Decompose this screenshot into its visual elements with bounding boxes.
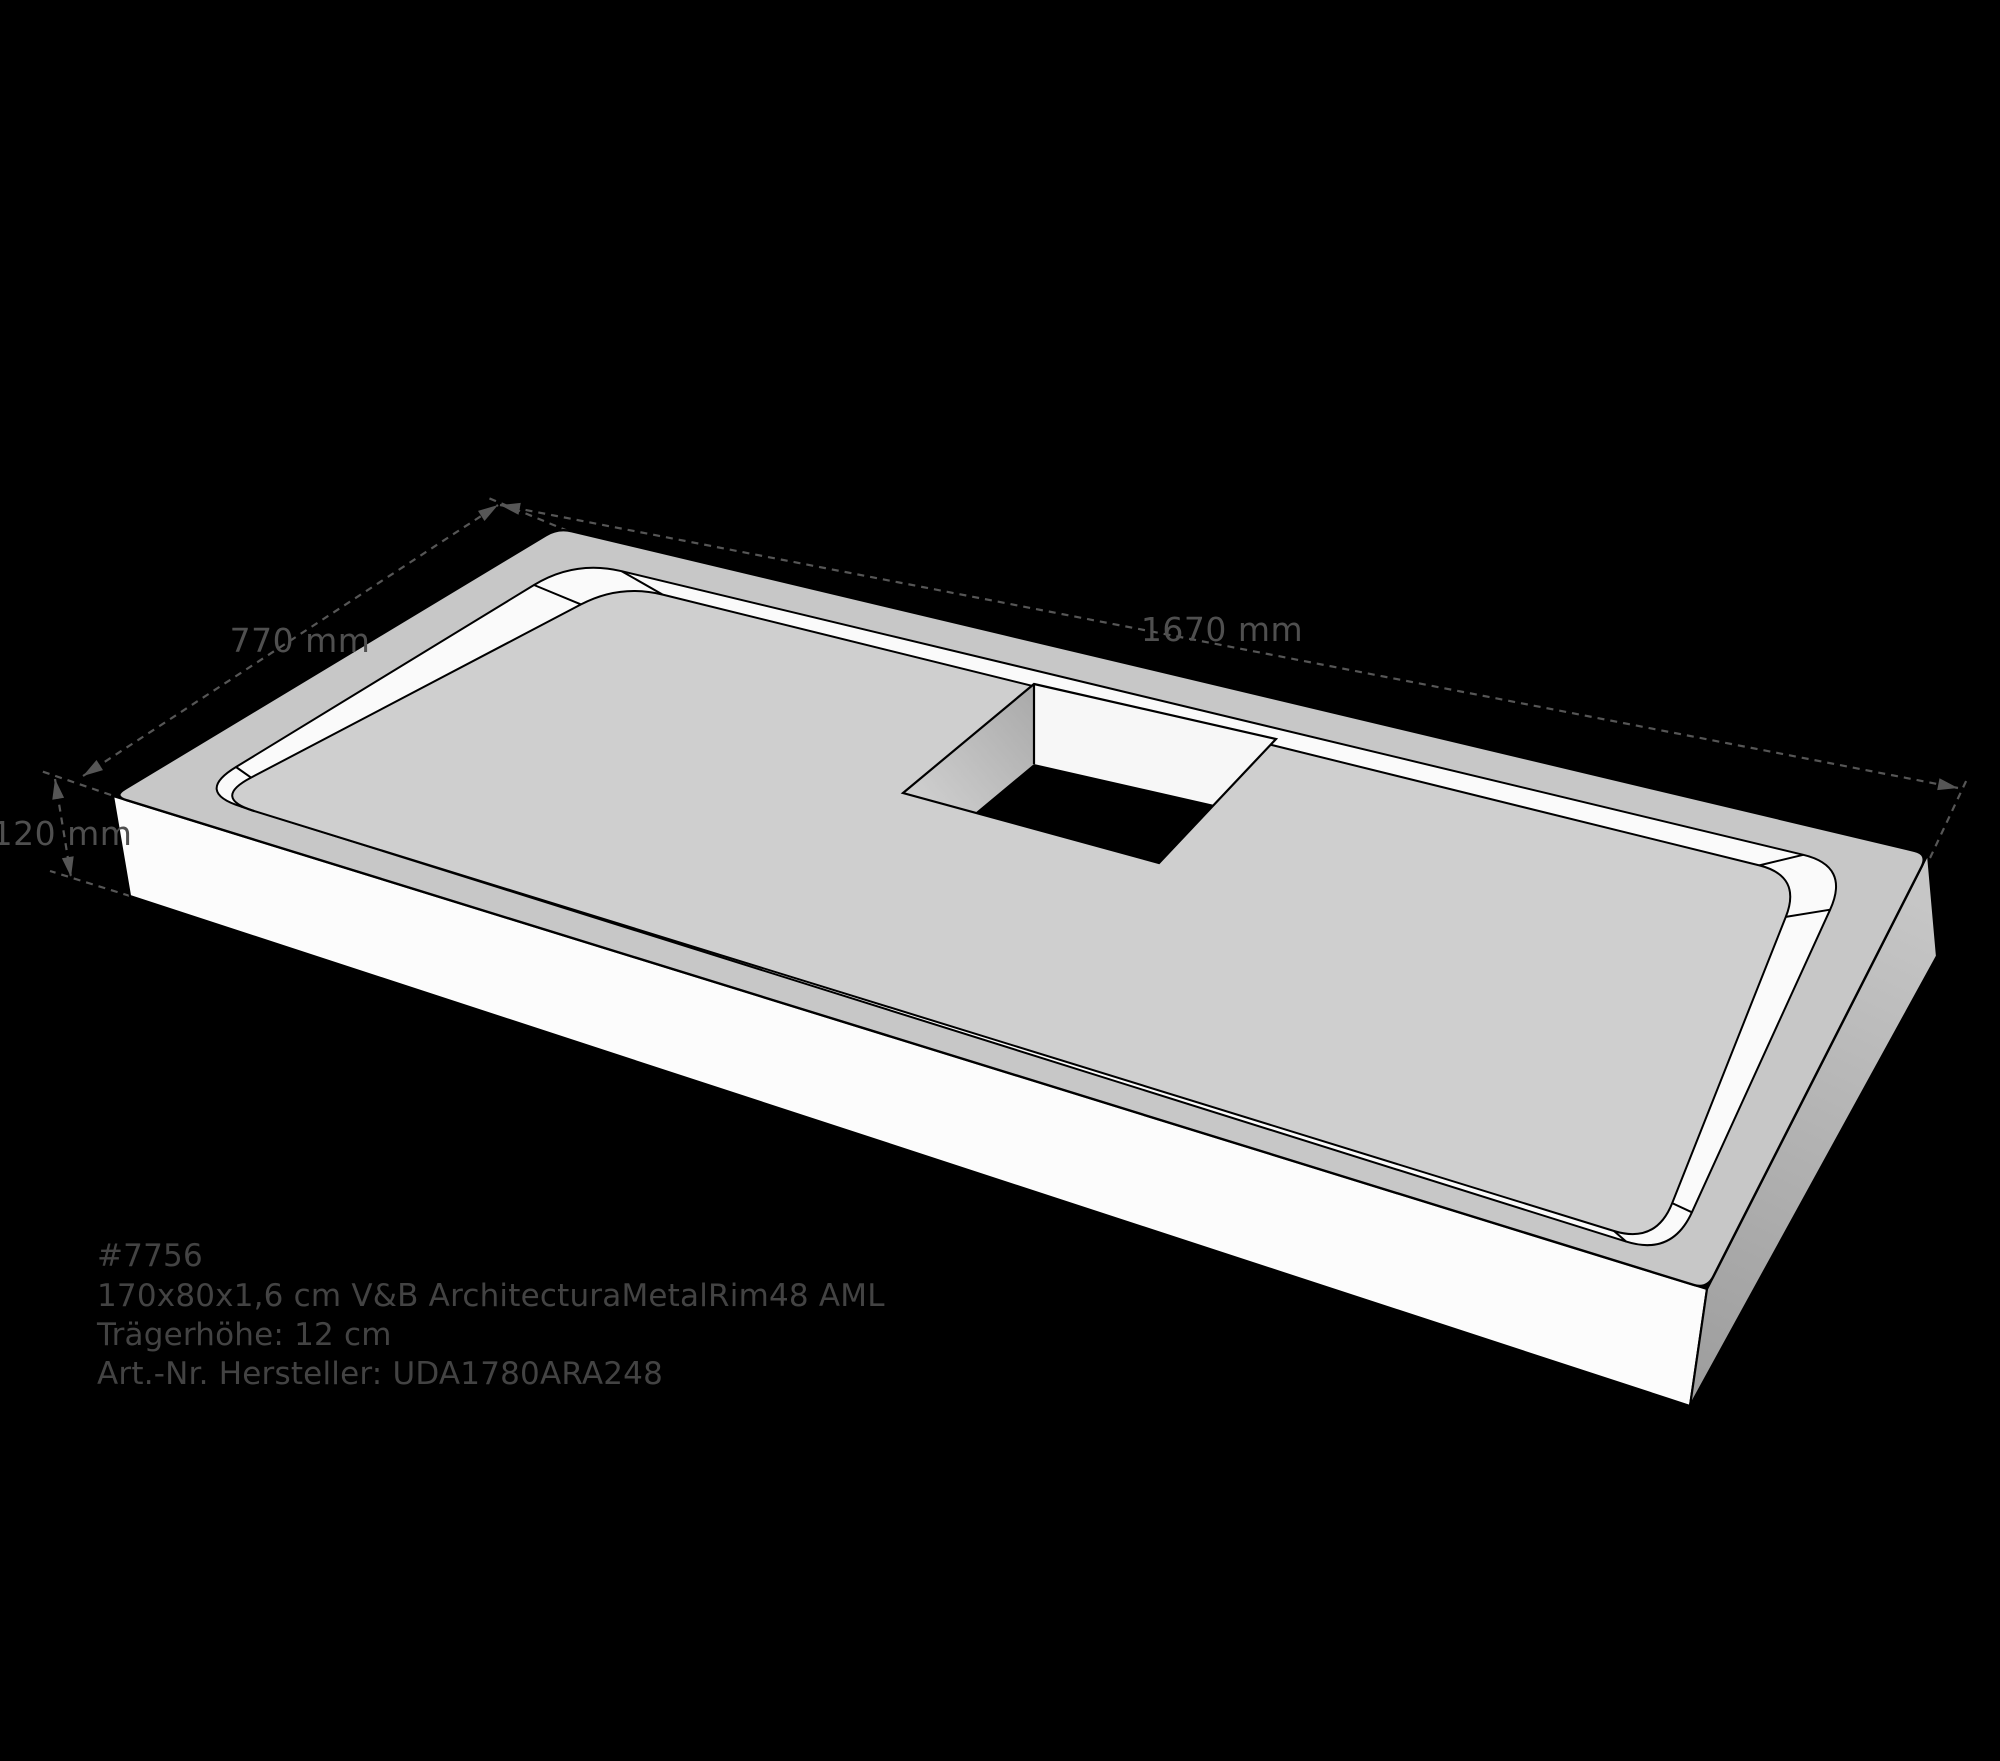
product-info-line-size: 170x80x1,6 cm V&B ArchitecturaMetalRim48… [97,1278,885,1314]
length-dimension-label: 1670 mm [1141,610,1303,649]
technical-drawing: 1670 mm 770 mm 120 mm #7756 170x80x1,6 c… [0,0,2000,1761]
height-dimension-label: 120 mm [0,814,132,853]
product-info-line-artnr: Art.-Nr. Hersteller: UDA1780ARA248 [97,1356,663,1392]
product-info-line-id: #7756 [97,1238,203,1274]
product-info-line-height: Trägerhöhe: 12 cm [96,1317,392,1353]
width-dimension-label: 770 mm [230,621,371,660]
diagram-canvas: 1670 mm 770 mm 120 mm #7756 170x80x1,6 c… [0,0,2000,1761]
